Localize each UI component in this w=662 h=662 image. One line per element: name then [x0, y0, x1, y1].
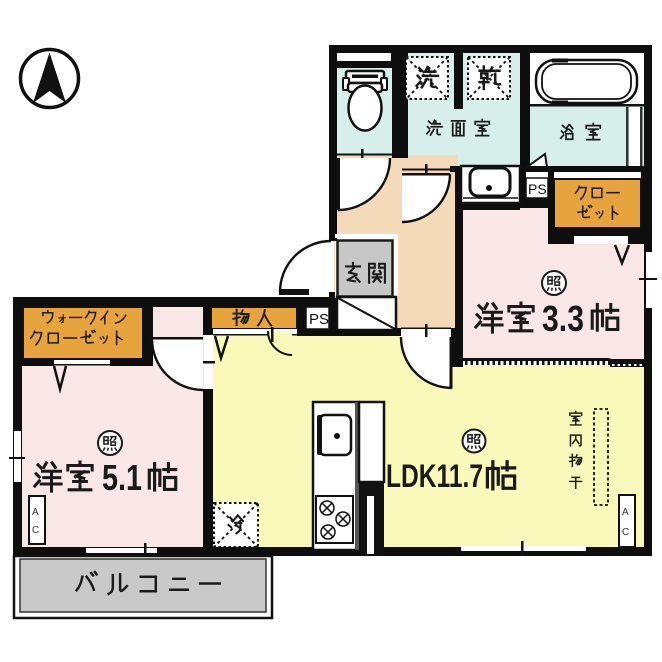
svg-text:C: C: [622, 527, 629, 538]
svg-text:A: A: [32, 507, 39, 518]
svg-text:C: C: [32, 525, 39, 536]
svg-text:PS: PS: [528, 181, 547, 197]
svg-text:PS: PS: [309, 311, 329, 328]
svg-text:LDK11.7: LDK11.7: [386, 458, 483, 494]
svg-text:A: A: [622, 507, 629, 518]
svg-text:3.3: 3.3: [542, 298, 584, 339]
svg-text:5.1: 5.1: [102, 457, 142, 498]
